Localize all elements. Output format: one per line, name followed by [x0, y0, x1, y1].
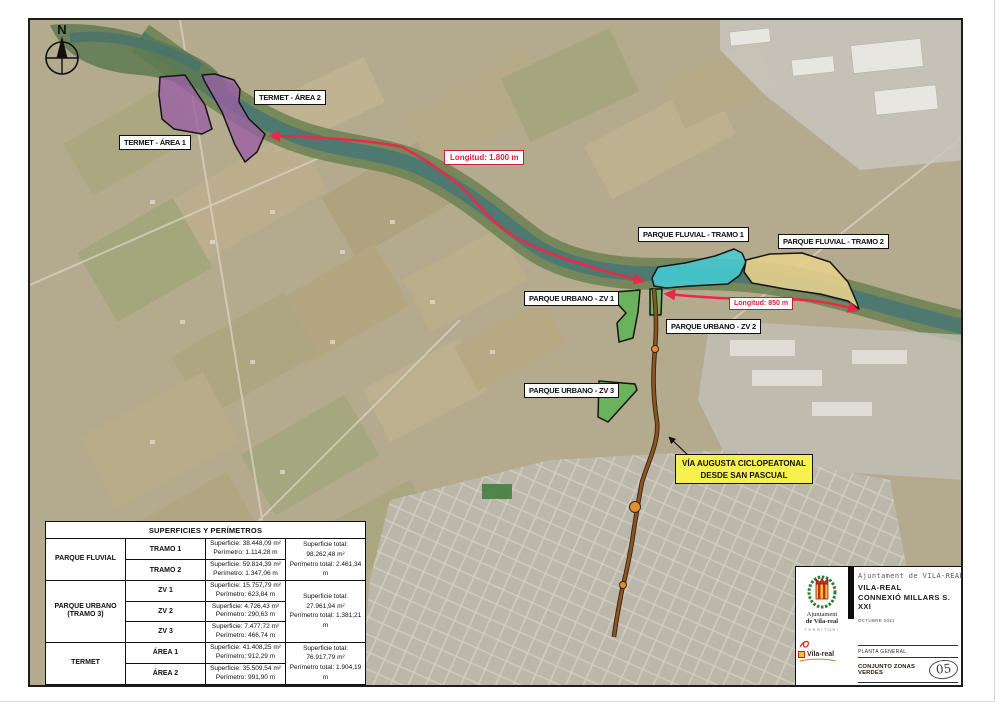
label-parque-urbano-zv-2: PARQUE URBANO - ZV 2: [666, 319, 761, 334]
org-header: Ajuntament de VILA-REAL: [858, 572, 962, 580]
brand-underline-icon: [798, 658, 838, 663]
plan-date: OCTUBRE 2021: [858, 618, 962, 623]
satellite-map: N TERMET - ÁREA 1 TERMET - ÁREA 2 PARQUE…: [28, 18, 963, 687]
table-row: PARQUE FLUVIAL TRAMO 1 Superficie: 38.44…: [46, 539, 366, 560]
title-block: Ajuntament de Vila-real TERRITORI Vila-r…: [795, 566, 963, 687]
label-parque-urbano-zv-3: PARQUE URBANO - ZV 3: [524, 383, 619, 398]
via-augusta-line1: VÍA AUGUSTA CICLOPEATONAL: [682, 458, 806, 470]
table-title: SUPERFICIES Y PERÍMETROS: [46, 522, 366, 539]
label-via-augusta: VÍA AUGUSTA CICLOPEATONAL DESDE SAN PASC…: [675, 454, 813, 484]
north-label: N: [57, 22, 66, 37]
logo-line3: TERRITORI: [796, 627, 848, 632]
label-parque-fluvial-tramo-2: PARQUE FLUVIAL - TRAMO 2: [778, 234, 889, 249]
label-longitud-1800: Longitud: 1.800 m: [444, 150, 524, 165]
plan-title: CONJUNTO ZONAS VERDES: [858, 664, 929, 676]
label-parque-urbano-zv-1: PARQUE URBANO - ZV 1: [524, 291, 619, 306]
table-row: TERMET ÁREA 1 Superficie: 41.408,25 m²Pe…: [46, 642, 366, 663]
label-termet-area-1: TERMET - ÁREA 1: [119, 135, 191, 150]
logo-brand: Vila-real: [807, 651, 834, 658]
label-termet-area-2: TERMET - ÁREA 2: [254, 90, 326, 105]
plan-sheet: N TERMET - ÁREA 1 TERMET - ÁREA 2 PARQUE…: [0, 0, 1000, 707]
plan-type: PLANTA GENERAL: [858, 649, 958, 658]
surfaces-perimeters-table: SUPERFICIES Y PERÍMETROS PARQUE FLUVIAL …: [45, 521, 366, 685]
group-parque-fluvial: PARQUE FLUVIAL: [46, 539, 126, 581]
table-row: PARQUE URBANO(TRAMO 3) ZV 1 Superficie: …: [46, 581, 366, 602]
label-parque-fluvial-tramo-1: PARQUE FLUVIAL - TRAMO 1: [638, 227, 749, 242]
label-longitud-850: Longitud: 850 m: [729, 297, 793, 310]
logo-line1: Ajuntament: [796, 611, 848, 618]
page-edge: [0, 701, 995, 702]
sheet-number: 05: [928, 659, 959, 681]
via-augusta-line2: DESDE SAN PASCUAL: [682, 470, 806, 482]
group-termet: TERMET: [46, 642, 126, 684]
page-edge: [994, 0, 995, 702]
project-line2: CONNEXIÓ MILLARS S. XXI: [858, 593, 962, 611]
vila-real-crest-icon: [796, 571, 848, 611]
brand-square-icon: [798, 651, 805, 658]
title-block-logos: Ajuntament de Vila-real TERRITORI Vila-r…: [796, 567, 848, 687]
title-block-divider: [848, 567, 854, 619]
vila-real-brand-icon: [798, 639, 844, 651]
logo-line2: de Vila-real: [796, 618, 848, 625]
group-parque-urbano: PARQUE URBANO(TRAMO 3): [46, 581, 126, 643]
project-line1: VILA-REAL: [858, 583, 962, 592]
